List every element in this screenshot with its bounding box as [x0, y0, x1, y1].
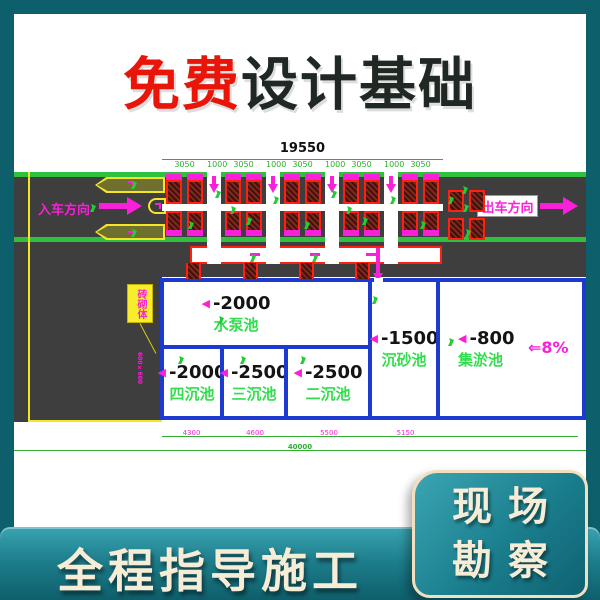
- dim-seg: 5500: [289, 429, 369, 437]
- grate-square: [284, 180, 300, 204]
- duct-arrow-shaft: [366, 253, 376, 256]
- grate-cap: [402, 230, 418, 236]
- grate-cap: [305, 230, 321, 236]
- grate-cap: [423, 230, 439, 236]
- level-marker-icon: ◀: [201, 298, 209, 309]
- curb-line-vertical: [28, 172, 30, 422]
- grate-square: [343, 180, 359, 204]
- grate-square: [246, 180, 262, 204]
- dim-total-bottom: 40000: [270, 443, 330, 451]
- annotation-box: 砖砌体: [127, 284, 153, 323]
- pool-name: 二沉池: [305, 383, 350, 404]
- grate-square: [187, 180, 203, 204]
- grate-cap: [166, 230, 182, 236]
- duct-stub: [355, 263, 370, 279]
- duct-stub: [243, 263, 258, 279]
- duct-stub: [299, 263, 314, 279]
- grate-square: [469, 218, 485, 240]
- pool-depth: -2000: [213, 293, 271, 314]
- curb-line-bottom: [28, 420, 162, 422]
- grate-cap: [246, 230, 262, 236]
- pool-sand: ◀-1500 沉砂池: [368, 278, 440, 420]
- grate-square: [364, 180, 380, 204]
- badge-line-2: 勘察: [436, 534, 564, 588]
- pool-pump: ◀-2000 水泵池: [160, 278, 372, 349]
- badge-line-1: 现场: [436, 480, 564, 534]
- exit-direction-box: 出车方向: [477, 195, 538, 217]
- inlet-arrow-shaft: [376, 248, 380, 274]
- annotation-note: 600×600: [136, 352, 143, 392]
- pool-depth: -2000: [169, 362, 227, 383]
- level-marker-icon: ◀: [157, 367, 165, 378]
- dim-seg: 4600: [221, 429, 289, 437]
- exit-direction-label: 出车方向: [481, 197, 533, 216]
- dim-seg: 3050: [398, 160, 443, 170]
- promo-image: 免费设计基础 19550 3050 1000 3050 1000 3050 10…: [0, 0, 600, 600]
- dim-total-top: 19550: [162, 141, 443, 156]
- level-marker-icon: ◀: [369, 333, 377, 344]
- channel-arrow-shaft: [271, 176, 275, 186]
- grate-cap: [187, 230, 203, 236]
- pool-depth: -1500: [381, 328, 439, 349]
- dim-segments-bottom: 4300 4600 5500 5150: [162, 429, 442, 437]
- corner-badge: 现场 勘察: [412, 470, 588, 598]
- exit-arrow-head: [563, 197, 578, 215]
- pool-name: 沉砂池: [381, 349, 426, 370]
- dim-seg: 3050: [221, 160, 266, 170]
- pool-second: ◀-2500 二沉池: [284, 345, 372, 420]
- level-marker-icon: ◀: [293, 367, 301, 378]
- entry-arrow-shaft: [99, 203, 127, 209]
- dim-seg: 1000: [384, 160, 398, 170]
- dim-seg: 3050: [280, 160, 325, 170]
- channel-arrow-shaft: [330, 176, 334, 186]
- dim-seg: 4300: [162, 429, 221, 437]
- pool-depth: -2500: [305, 362, 363, 383]
- entry-direction-label: 入车方向: [38, 199, 90, 218]
- footer-slogan: 全程指导施工: [20, 535, 400, 600]
- dim-seg: 5150: [369, 429, 442, 437]
- grate-square: [225, 180, 241, 204]
- grate-square: [469, 190, 485, 212]
- dim-seg: 3050: [162, 160, 207, 170]
- pool-depth: -800: [469, 328, 514, 349]
- pool-name: 三沉池: [231, 383, 276, 404]
- pool-name: 集淤池: [458, 349, 503, 370]
- channel-arrow-shaft: [212, 176, 216, 186]
- grate-square: [166, 180, 182, 204]
- grate-cap: [343, 230, 359, 236]
- pool-third: ◀-2500 三沉池: [220, 345, 288, 420]
- sand-pool-inlet-gap: [374, 278, 383, 283]
- grate-square: [305, 180, 321, 204]
- grate-square: [448, 218, 464, 240]
- duct-stub: [186, 263, 201, 279]
- dim-segments-top: 3050 1000 3050 1000 3050 1000 3050 1000 …: [162, 160, 443, 170]
- grate-cap: [225, 230, 241, 236]
- grate-cap: [364, 230, 380, 236]
- dim-seg: 1000: [266, 160, 280, 170]
- grate-square: [402, 180, 418, 204]
- grate-square: [423, 180, 439, 204]
- channel-arrow-shaft: [389, 176, 393, 186]
- exit-arrow-shaft: [540, 203, 564, 209]
- level-marker-icon: ◀: [458, 333, 466, 344]
- grid-mid-channel: [162, 204, 443, 211]
- lane-stripe-bottom: [14, 237, 586, 242]
- pool-name: 四沉池: [169, 383, 214, 404]
- level-marker-icon: ◀: [219, 367, 227, 378]
- dim-seg: 3050: [339, 160, 384, 170]
- dim-seg: 1000: [207, 160, 221, 170]
- lane-stripe-top: [14, 172, 586, 177]
- island-mark: [155, 203, 161, 209]
- pool-depth: -2500: [231, 362, 289, 383]
- entry-arrow-head: [127, 197, 142, 215]
- slope-label: ⇐8%: [528, 338, 569, 357]
- dim-seg: 1000: [325, 160, 339, 170]
- pool-fourth: ◀-2000 四沉池: [160, 345, 224, 420]
- grate-cap: [284, 230, 300, 236]
